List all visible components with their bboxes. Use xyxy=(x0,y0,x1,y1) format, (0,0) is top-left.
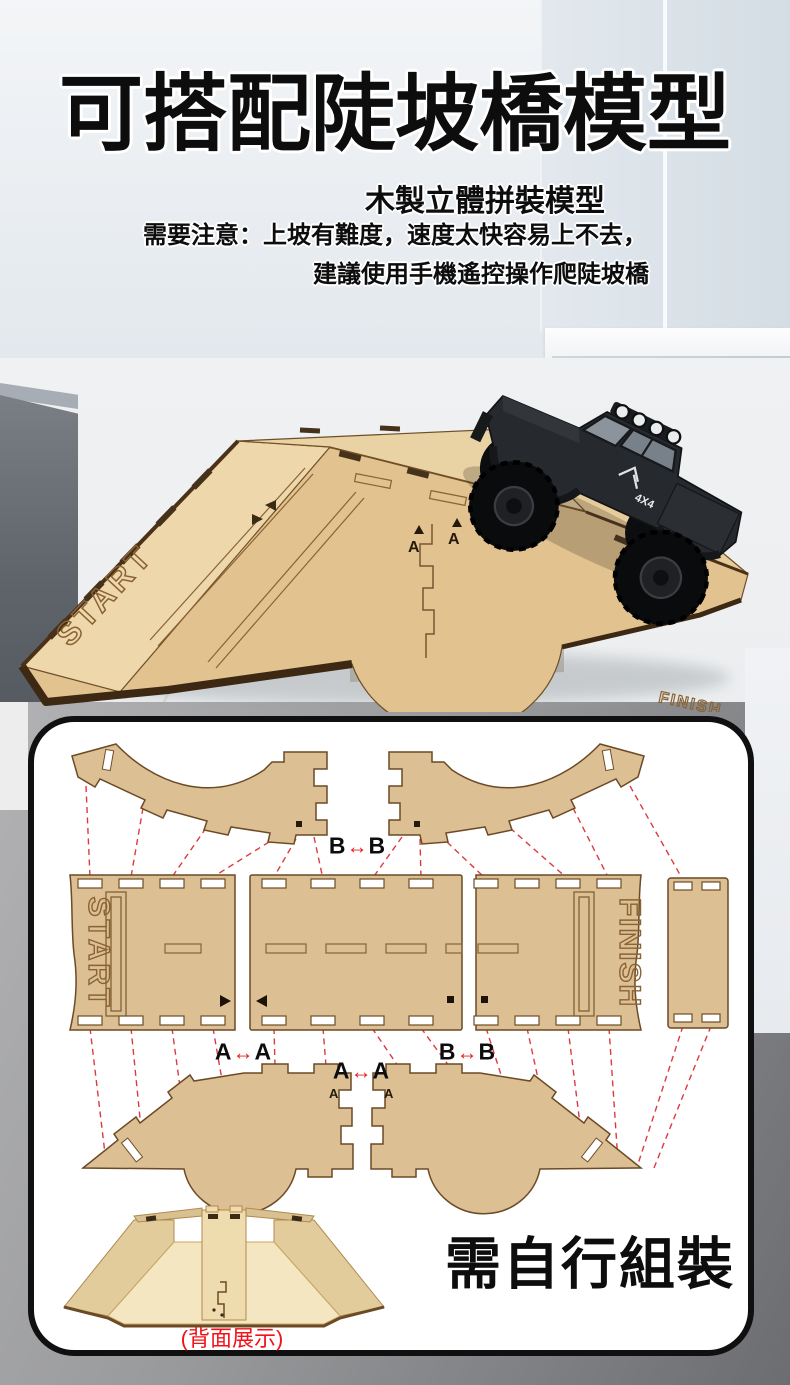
red-double-arrow: ↔ xyxy=(233,1042,254,1065)
start-panel: START xyxy=(70,875,235,1030)
note-line-2: 建議使用手機遙控操作爬陡坡橋 xyxy=(86,254,790,289)
assembly-note: 需自行組裝 xyxy=(445,1220,735,1301)
center-panel xyxy=(250,875,462,1030)
red-double-arrow: ↔ xyxy=(347,836,368,859)
finish-panel: FINISH xyxy=(474,875,646,1030)
red-double-arrow: ↔ xyxy=(351,1061,372,1084)
bottom-rail-right xyxy=(371,1064,641,1214)
joint-label-top: B↔B xyxy=(329,833,385,860)
page-title: 可搭配陡坡橋模型 xyxy=(0,70,790,158)
top-rail-left xyxy=(72,744,327,844)
bottom-rail-left xyxy=(83,1064,353,1214)
finish-panel-label: FINISH xyxy=(613,898,646,1008)
top-rail-right xyxy=(389,744,644,844)
joint-label-mid-right: B↔B xyxy=(439,1039,495,1066)
joint-letter: A xyxy=(215,1039,232,1065)
joint-label-lower: A↔A xyxy=(333,1058,389,1085)
joint-letter: A xyxy=(333,1058,350,1084)
back-view-photo xyxy=(64,1206,384,1326)
end-panel xyxy=(668,878,728,1028)
joint-letter: B xyxy=(329,833,346,859)
seam-letter-left: A xyxy=(408,539,420,556)
back-view-caption: (背面展示) xyxy=(181,1321,284,1353)
joint-letter: A xyxy=(255,1039,272,1065)
page-subtitle: 木製立體拼裝模型 xyxy=(90,176,790,220)
rail-seam-letter-left: A xyxy=(329,1086,339,1101)
joint-label-mid-left: A↔A xyxy=(215,1039,271,1066)
assembly-diagram-panel: START xyxy=(28,716,754,1356)
joint-letter: B xyxy=(369,833,386,859)
start-panel-label: START xyxy=(82,897,115,1010)
seam-letter-right: A xyxy=(448,531,460,548)
joint-letter: B xyxy=(439,1039,456,1065)
note-line-1: 需要注意：上坡有難度，速度太快容易上不去， xyxy=(0,215,790,250)
joint-letter: B xyxy=(479,1039,496,1065)
finish-engraving: FINISH xyxy=(657,689,724,712)
product-detail-image: START FINISH A A xyxy=(0,0,790,1385)
red-double-arrow: ↔ xyxy=(457,1042,478,1065)
rail-seam-letter-right: A xyxy=(384,1086,394,1101)
left-light-strip xyxy=(0,702,28,810)
joint-letter: A xyxy=(373,1058,390,1084)
